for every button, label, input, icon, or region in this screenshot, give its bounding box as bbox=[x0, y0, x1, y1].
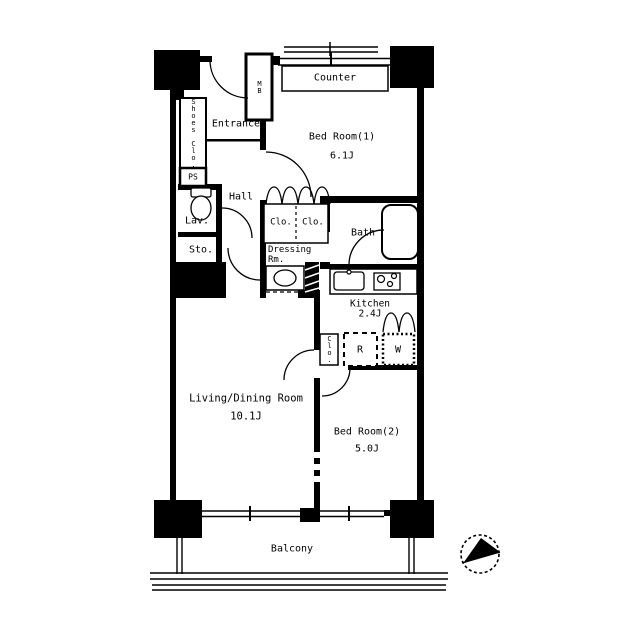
label-refrigerator: R bbox=[357, 345, 363, 356]
label-counter: Counter bbox=[314, 73, 356, 84]
label-kitchen-closet: Clo. bbox=[326, 335, 333, 363]
lavatory-door-arc bbox=[222, 208, 252, 238]
label-bath: Bath bbox=[351, 228, 375, 239]
label-entrance: Entrance bbox=[212, 119, 260, 130]
floor-plan-drawing bbox=[0, 0, 640, 640]
label-washing-machine: W bbox=[395, 345, 401, 356]
label-meter-box: MB bbox=[256, 80, 263, 94]
label-dressing-line2: Rm. bbox=[268, 255, 284, 265]
floor-plan: Counter MB Entrance Shoes Clo. Bed Room(… bbox=[0, 0, 640, 640]
pillar-top-right bbox=[390, 46, 434, 88]
living-door-arc bbox=[284, 350, 314, 380]
label-balcony: Balcony bbox=[271, 544, 313, 555]
label-living-name: Living/Dining Room bbox=[189, 394, 303, 405]
pillar-bottom-left bbox=[154, 500, 202, 538]
label-closet-2: Clo. bbox=[302, 218, 324, 229]
partition-dashes bbox=[314, 452, 321, 482]
label-storage: Sto. bbox=[189, 245, 213, 256]
label-hall: Hall bbox=[229, 192, 253, 203]
label-shoes-closet: Shoes Clo. bbox=[190, 98, 197, 168]
kitchen-sink-icon bbox=[334, 272, 364, 290]
label-bedroom2-name: Bed Room(2) bbox=[334, 427, 400, 438]
label-bedroom1-name: Bed Room(1) bbox=[309, 132, 375, 143]
label-dressing-line1: Dressing bbox=[268, 245, 311, 255]
bedroom1-door-arc bbox=[266, 152, 311, 197]
label-closet-1: Clo. bbox=[270, 218, 292, 229]
bathtub-icon bbox=[382, 205, 418, 259]
label-bedroom2-size: 5.0J bbox=[355, 444, 379, 455]
bedroom2-door-arc bbox=[322, 368, 350, 396]
closet-bifold-arc bbox=[266, 187, 282, 204]
washbasin-icon bbox=[274, 270, 296, 286]
hall-door-arc bbox=[228, 248, 260, 280]
pillar-top-left bbox=[154, 50, 200, 90]
label-living-size: 10.1J bbox=[230, 412, 262, 423]
faucet-icon bbox=[347, 270, 351, 274]
north-arrow-icon bbox=[461, 535, 500, 573]
label-bedroom1-size: 6.1J bbox=[330, 151, 354, 162]
washer-bifold-arc bbox=[383, 313, 399, 332]
label-kitchen-size: 2.4J bbox=[359, 309, 382, 320]
label-pipe-space: PS bbox=[188, 172, 198, 183]
water-heater-icon bbox=[305, 262, 319, 292]
pillar-bottom-right bbox=[390, 500, 434, 538]
entrance-door-arc bbox=[210, 60, 248, 98]
label-lavatory: Lav. bbox=[185, 216, 209, 227]
